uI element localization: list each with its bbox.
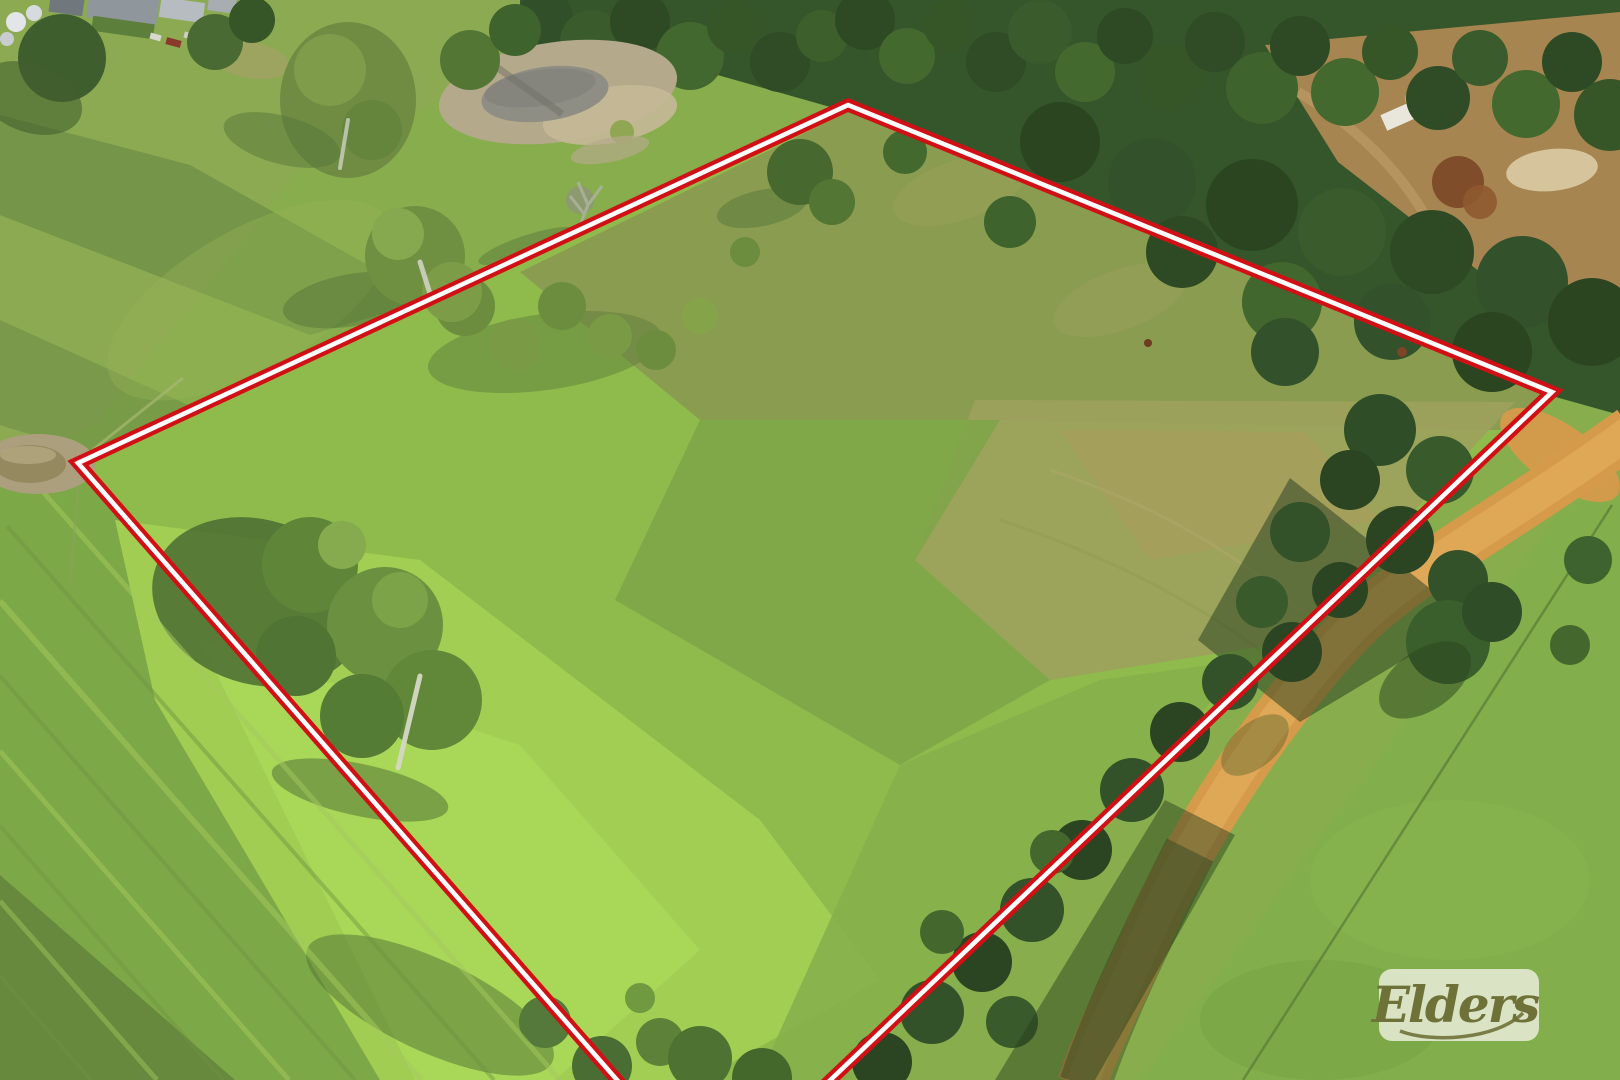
scene-shapes xyxy=(0,0,1620,1080)
elders-watermark: Elders xyxy=(1370,969,1540,1041)
watermark-logo-text: Elders xyxy=(1370,975,1540,1034)
aerial-photo: Elders xyxy=(0,0,1620,1080)
aerial-photo-canvas: Elders xyxy=(0,0,1620,1080)
